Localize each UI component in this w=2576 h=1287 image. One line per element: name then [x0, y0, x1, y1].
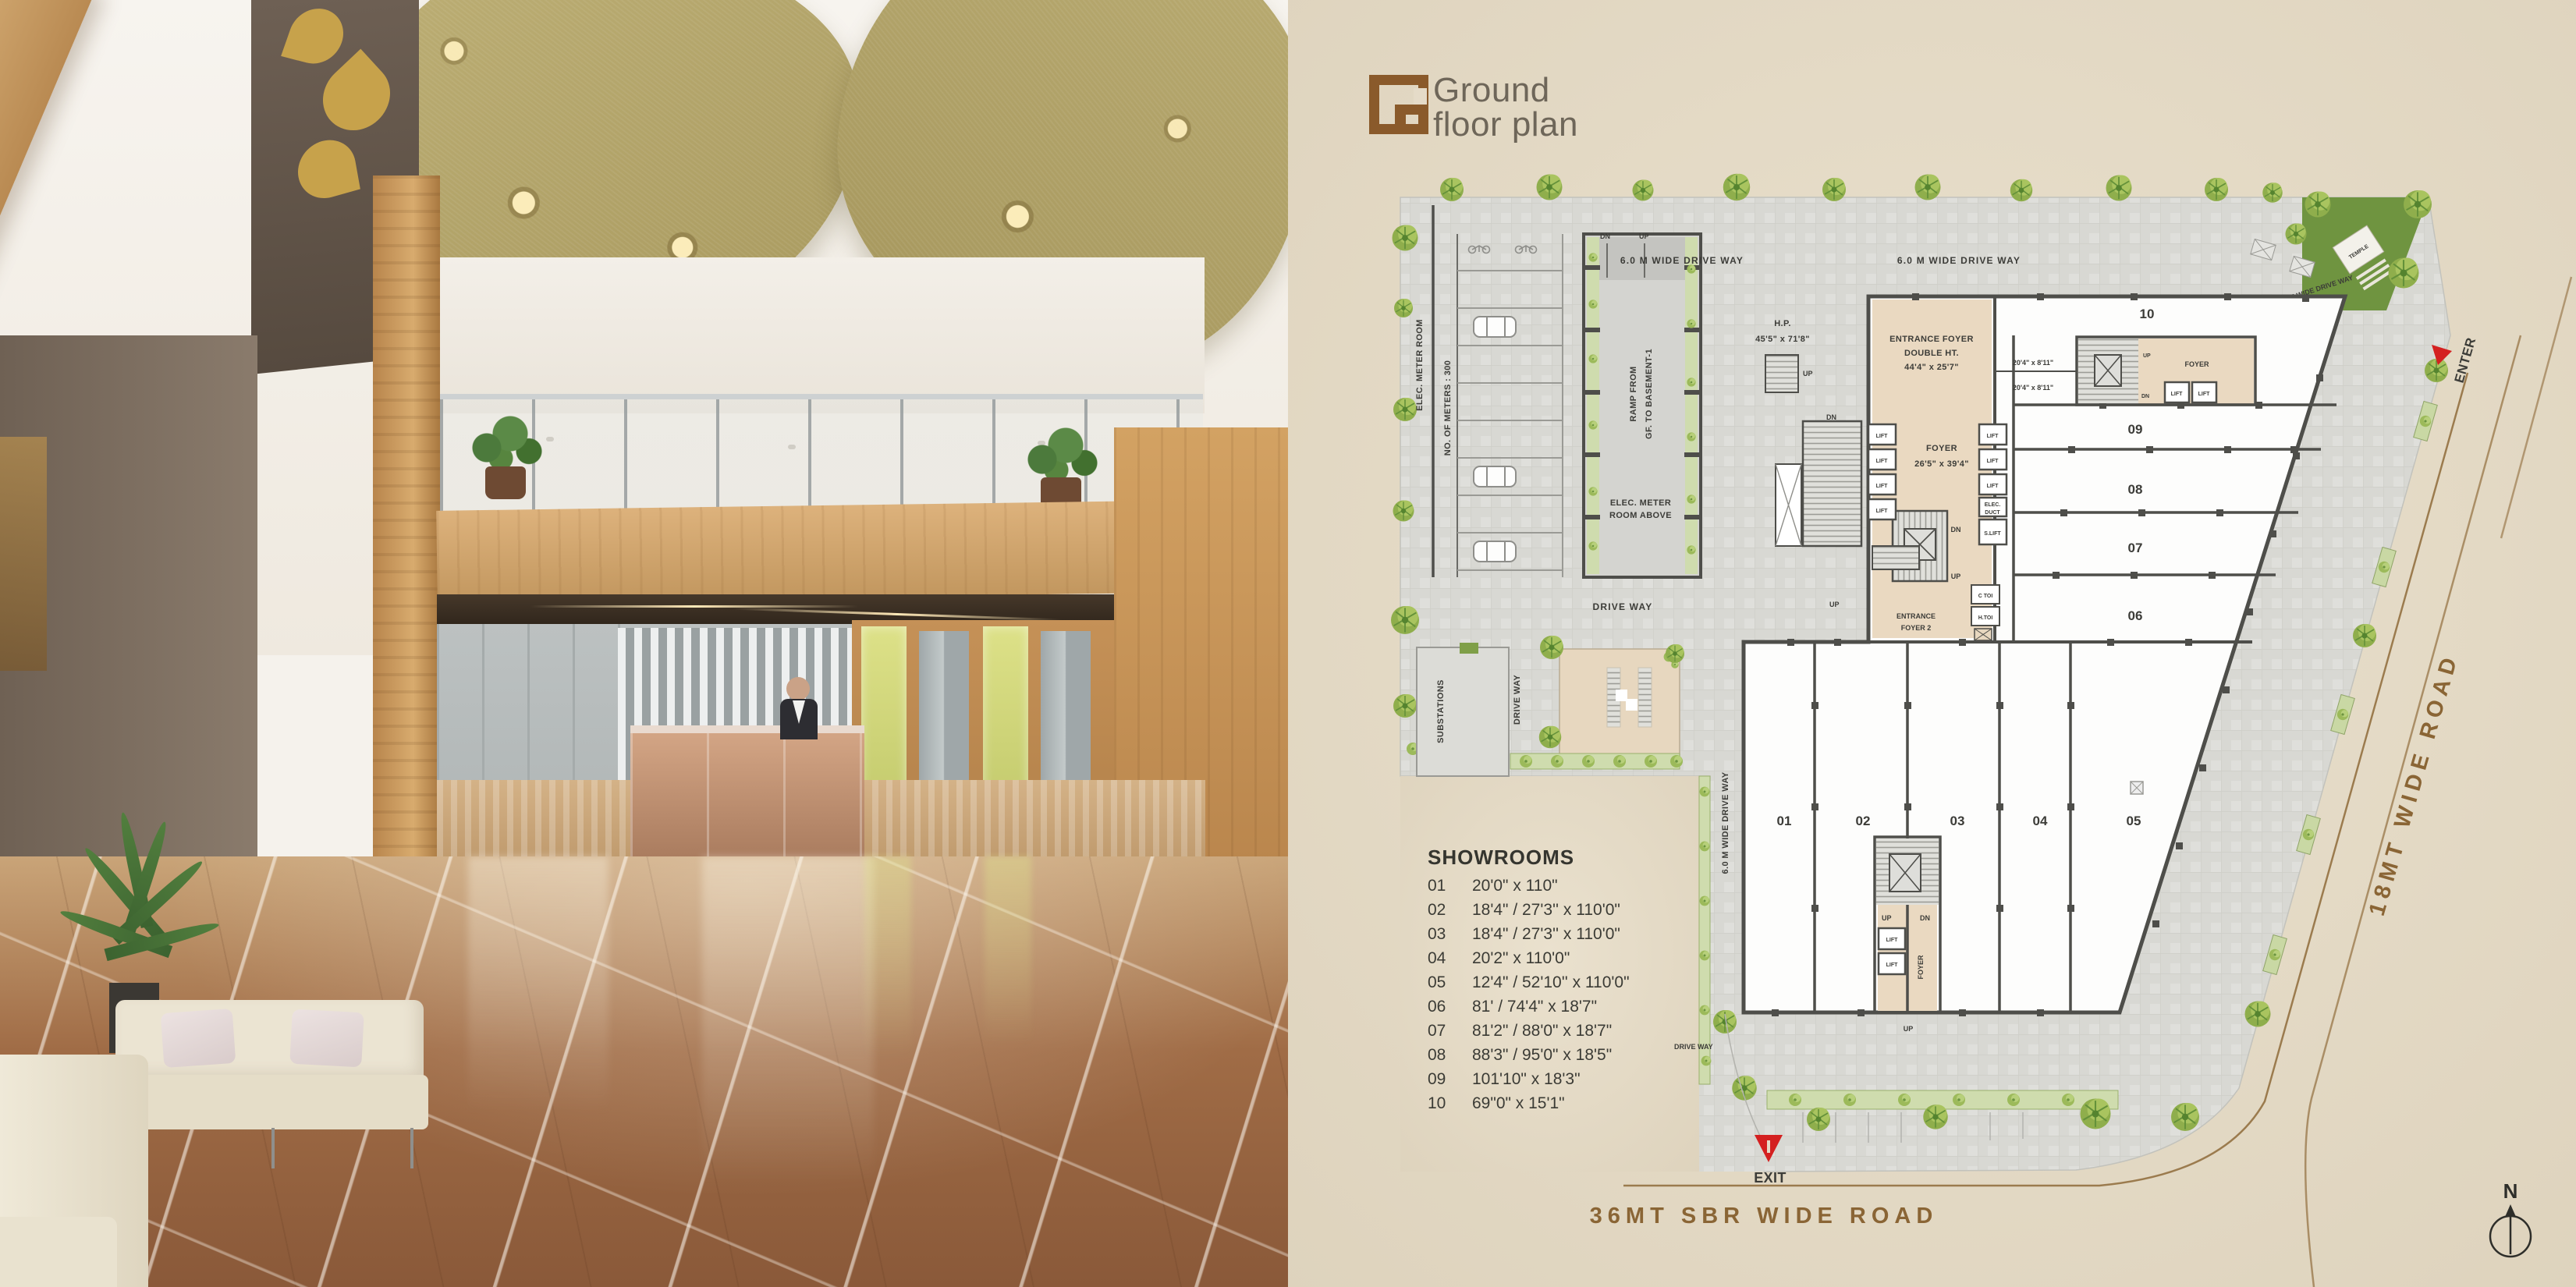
lift-label: LIFT — [1876, 459, 1888, 464]
stair-up-3: UP — [1829, 601, 1840, 608]
legend-dim: 18'4" / 27'3'' x 110'0" — [1472, 901, 1620, 919]
lift-label: LIFT — [1876, 484, 1888, 489]
driveway-label-top-1: 6.0 M WIDE DRIVE WAY — [1620, 255, 1744, 266]
ramp-dn-label: DN — [1600, 232, 1610, 240]
bfoyer-entry-up: UP — [1904, 1025, 1914, 1033]
driveway-label-bottom: DRIVE WAY — [1674, 1043, 1713, 1051]
elec-duct-label-2: DUCT — [1985, 510, 2000, 516]
bfoyer-dn: DN — [1920, 914, 1930, 922]
foyer10-dn: DN — [2141, 394, 2149, 399]
lift-label: LIFT — [1886, 963, 1898, 968]
elec-duct-label-1: ELEC. — [1985, 502, 2001, 508]
hp-dim-label: 45'5" x 71'8" — [1755, 335, 1810, 344]
legend-dim: 69"0" x 15'1" — [1472, 1094, 1565, 1112]
lift-label: LIFT — [1987, 484, 1999, 489]
substations-block: SUBSTATIONS DRIVE WAY — [1417, 643, 1522, 776]
driveway-label-mid: DRIVE WAY — [1592, 601, 1652, 612]
showroom-04: 04 — [2033, 814, 2048, 828]
reception-desk — [630, 725, 864, 864]
floor-plan-svg: Ground floor plan TEMPLE — [1288, 0, 2576, 1287]
car-icon — [1474, 541, 1516, 562]
driveway-label-left-vertical: 6.0 M WIDE DRIVE WAY — [1721, 771, 1730, 874]
floor-plan-panel: Ground floor plan TEMPLE — [1288, 0, 2576, 1287]
hp-stair — [1765, 355, 1798, 392]
bfoyer-up: UP — [1882, 914, 1892, 922]
bfoyer-label: FOYER — [1917, 955, 1925, 980]
meter-above-label-2: ROOM ABOVE — [1609, 511, 1672, 520]
plan-title-line2: floor plan — [1433, 105, 1578, 144]
plant-pot — [485, 466, 526, 499]
entrance-foyer-label-1: ENTRANCE FOYER — [1889, 335, 1974, 344]
road-label-bottom: 36MT SBR WIDE ROAD — [1590, 1204, 1939, 1228]
showroom-09: 09 — [2128, 422, 2143, 437]
brochure-page: Ground floor plan TEMPLE — [0, 0, 2576, 1287]
ramp-up-label: UP — [1639, 232, 1649, 240]
floor-reflection — [702, 856, 874, 1184]
linear-pendant-light — [733, 608, 1061, 622]
lobby-photo — [0, 0, 1288, 1287]
sofa-seat — [111, 1075, 428, 1129]
mezzanine-wall — [440, 257, 1205, 413]
dim-10-lower: 20'4" x 8'11" — [2013, 384, 2053, 392]
legend-no: 02 — [1428, 901, 1446, 919]
plan-title-line1: Ground — [1433, 71, 1550, 109]
linear-pendant-light — [530, 605, 858, 608]
lift-label: LIFT — [1876, 434, 1888, 439]
ramp-label-1: RAMP FROM — [1629, 366, 1638, 421]
exit-label: EXIT — [1754, 1170, 1787, 1186]
lift-label: LIFT — [2171, 392, 2183, 397]
entrance-foyer-label-2: DOUBLE HT. — [1904, 349, 1959, 358]
receptionist — [786, 677, 810, 700]
foyer-dim: 26'5" x 39'4" — [1914, 459, 1969, 469]
stair-up-2: UP — [1951, 573, 1961, 580]
legend-no: 04 — [1428, 949, 1446, 967]
driveway-label-top-2: 6.0 M WIDE DRIVE WAY — [1897, 255, 2021, 266]
lift-label: LIFT — [2198, 392, 2210, 397]
legend-no: 01 — [1428, 877, 1446, 895]
legend-dim: 81'2" / 88'0" x 18'7" — [1472, 1022, 1612, 1040]
showroom-06: 06 — [2128, 608, 2143, 623]
h-toi-label: H.TOI — [1978, 615, 1993, 621]
legend-no: 09 — [1428, 1070, 1446, 1088]
driveway-label-left: DRIVE WAY — [1513, 675, 1522, 725]
legend-dim: 12'4" / 52'10'' x 110'0" — [1472, 973, 1630, 991]
entry-plaza — [1539, 636, 1684, 756]
legend-title: SHOWROOMS — [1428, 846, 1574, 869]
lift-label: LIFT — [1876, 509, 1888, 514]
legend-no: 10 — [1428, 1094, 1446, 1112]
hp-stair-up: UP — [1803, 370, 1813, 378]
foyer-label: FOYER — [1926, 444, 1957, 453]
armchair-foreground — [0, 1217, 117, 1287]
plan-header: Ground floor plan — [1375, 71, 1579, 144]
car-icon — [1474, 317, 1516, 337]
foyer10-up: UP — [2143, 353, 2151, 359]
hp-label: H.P. — [1774, 319, 1791, 328]
meter-above-label-1: ELEC. METER — [1610, 498, 1671, 508]
foyer10-label: FOYER — [2184, 360, 2209, 368]
dim-10-upper: 20'4" x 8'11" — [2013, 359, 2053, 367]
showroom-08: 08 — [2128, 482, 2143, 497]
legend-no: 05 — [1428, 973, 1446, 991]
north-label: N — [2503, 1179, 2518, 1203]
showroom-10: 10 — [2140, 307, 2155, 321]
glass-reflection — [864, 856, 911, 1059]
lift-label: LIFT — [1987, 459, 1999, 464]
logo-artwork — [309, 49, 403, 144]
service-lift-label: S.LIFT — [1984, 531, 2001, 537]
entrance-foyer2-label-1: ENTRANCE — [1897, 612, 1936, 620]
floor-reflection — [468, 856, 609, 1114]
c-toi-label: C TOI — [1978, 594, 1993, 599]
legend-dim: 81' / 74'4" x 18'7" — [1472, 998, 1597, 1016]
wall-art — [0, 437, 47, 671]
showroom-02: 02 — [1856, 814, 1871, 828]
pillow — [289, 1009, 364, 1068]
mezzanine-wood-fascia — [436, 500, 1206, 603]
legend-no: 06 — [1428, 998, 1446, 1016]
no-of-meters-label: NO. OF METERS : 300 — [1443, 360, 1453, 456]
legend-dim: 20'2" x 110'0" — [1472, 949, 1570, 967]
showroom5-shaft — [2131, 782, 2143, 794]
showroom-05: 05 — [2127, 814, 2141, 828]
stair-dn-2: DN — [1951, 526, 1961, 534]
legend-dim: 18'4" / 27'3'' x 110'0" — [1472, 925, 1620, 943]
legend-dim: 88'3" / 95'0" x 18'5" — [1472, 1046, 1612, 1064]
logo-artwork — [293, 133, 360, 205]
legend-no: 03 — [1428, 925, 1446, 943]
logo-artwork — [281, 3, 351, 69]
lift-label: LIFT — [1886, 938, 1898, 943]
legend-no: 07 — [1428, 1022, 1446, 1040]
elec-meter-room-label: ELEC. METER ROOM — [1415, 319, 1425, 411]
legend-dim: 20'0" x 110" — [1472, 877, 1558, 895]
substations-label: SUBSTATIONS — [1436, 679, 1446, 743]
car-icon — [1474, 466, 1516, 487]
mezzanine-plant — [459, 406, 552, 476]
pillow — [161, 1009, 236, 1068]
ramp-label-2: GF. TO BASEMENT-1 — [1645, 349, 1654, 439]
entrance-foyer2-label-2: FOYER 2 — [1901, 624, 1932, 632]
glass-reflection — [985, 856, 1031, 1044]
sofa-leg — [271, 1128, 275, 1168]
showroom-01: 01 — [1777, 814, 1792, 828]
ramp-to-basement: DN UP RAMP FROM GF. TO BASEMENT-1 ELEC. … — [1584, 232, 1701, 577]
plaza-hedge — [1510, 753, 1683, 769]
sofa-leg — [410, 1128, 413, 1168]
legend-no: 08 — [1428, 1046, 1446, 1064]
stair-dn: DN — [1826, 413, 1836, 421]
lift-bank-right: LIFT LIFT LIFT ELEC. DUCT S.LIFT — [1979, 424, 2007, 544]
showroom-03: 03 — [1950, 814, 1965, 828]
showroom-07: 07 — [2128, 541, 2143, 555]
sofa — [115, 1000, 424, 1152]
lift-label: LIFT — [1987, 434, 1999, 439]
entrance-foyer-dim: 44'4" x 25'7" — [1904, 363, 1959, 372]
legend-dim: 101'10" x 18'3" — [1472, 1070, 1581, 1088]
